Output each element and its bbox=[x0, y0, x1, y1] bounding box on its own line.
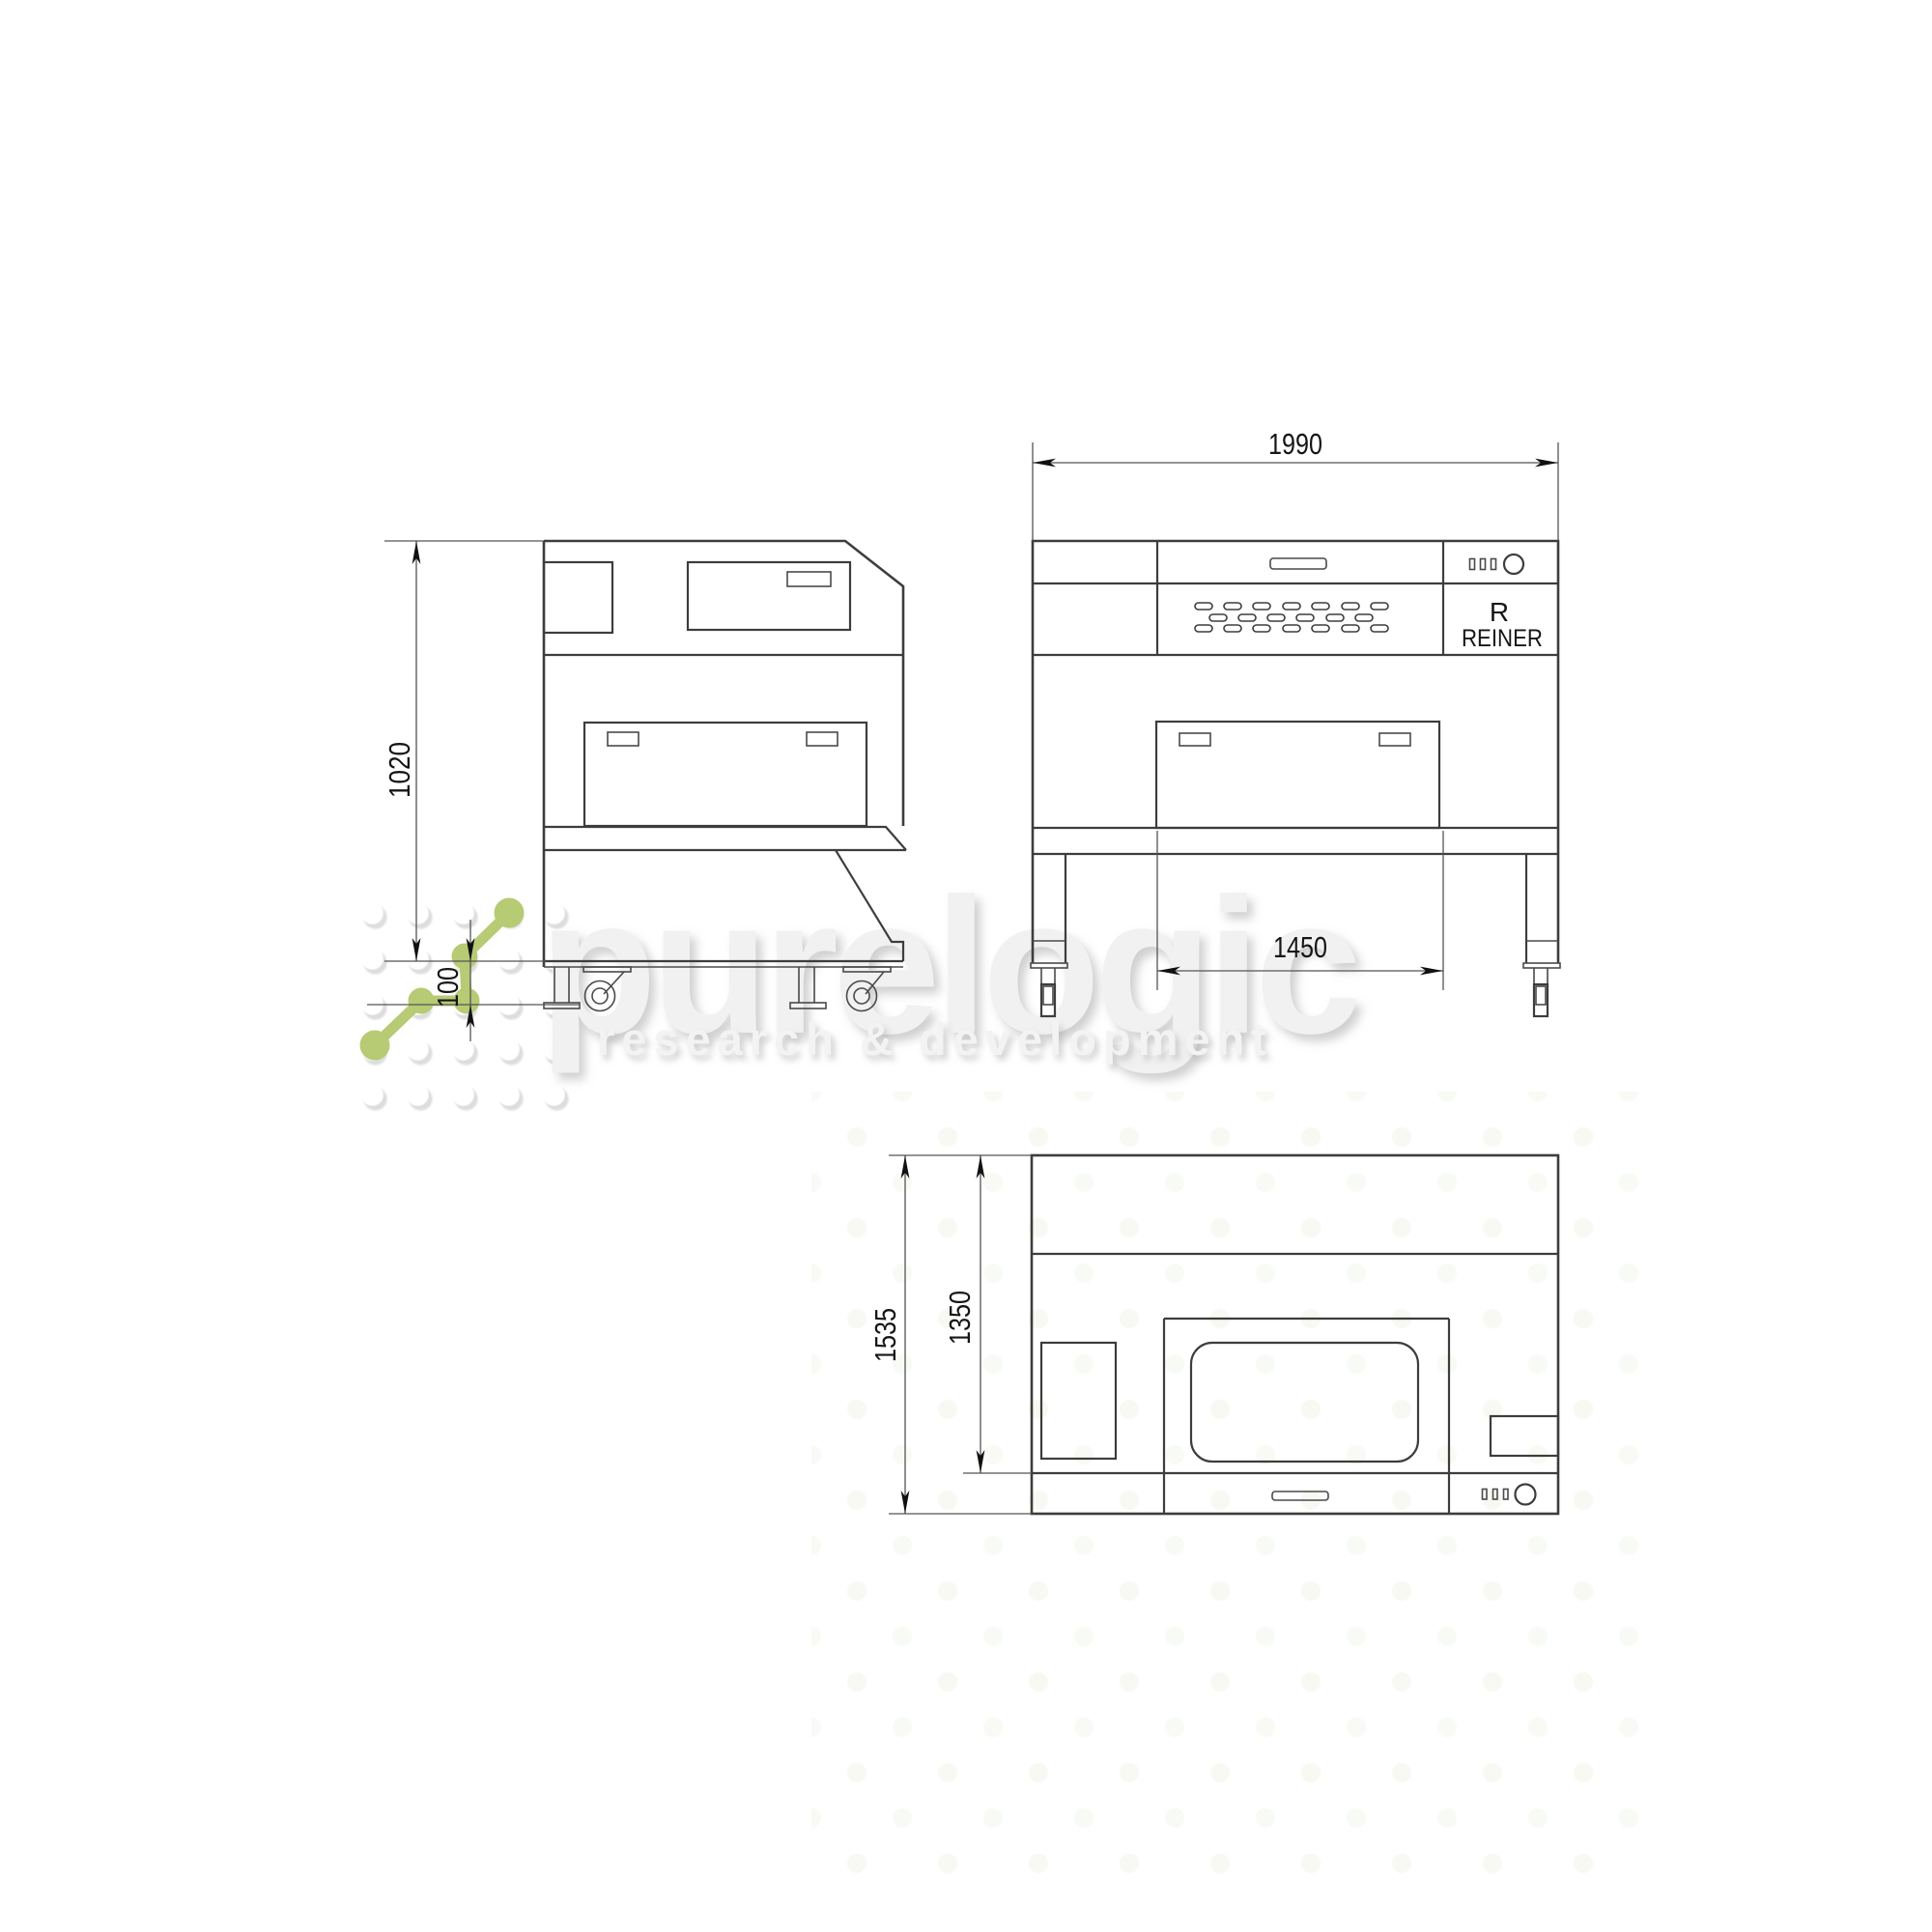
side-view bbox=[544, 541, 906, 1011]
technical-drawing: 1020 100 bbox=[0, 0, 1932, 1932]
caster-plate bbox=[583, 967, 631, 972]
vent-slot bbox=[1296, 614, 1314, 621]
leg-foot bbox=[790, 1003, 826, 1009]
front-control-cluster bbox=[1470, 554, 1524, 574]
caster-hub bbox=[592, 988, 608, 1004]
leg-stem bbox=[554, 967, 569, 1003]
side-table-band-top bbox=[544, 827, 906, 850]
front-handle-slot bbox=[1270, 558, 1326, 569]
side-base-diagonal bbox=[836, 850, 903, 961]
vent-slot bbox=[1224, 625, 1241, 632]
caster-wheel bbox=[847, 981, 877, 1011]
front-outline bbox=[1033, 541, 1558, 963]
vent-slot bbox=[1195, 603, 1212, 610]
column-foot bbox=[1523, 963, 1560, 968]
caster-stem bbox=[1041, 968, 1055, 984]
brand-name: REINER bbox=[1462, 625, 1543, 652]
vent-slot bbox=[1342, 625, 1359, 632]
top-handle-slot bbox=[1272, 1492, 1328, 1500]
indicator-bar bbox=[1483, 1490, 1488, 1500]
front-right-column bbox=[1523, 854, 1560, 1016]
column-foot bbox=[1031, 963, 1067, 968]
top-control-cluster bbox=[1483, 1485, 1536, 1505]
vent-slot bbox=[1253, 625, 1270, 632]
vent-slot bbox=[1312, 625, 1329, 632]
dim-text-top-total: 1535 bbox=[868, 1308, 902, 1362]
vent-slot bbox=[1371, 603, 1388, 610]
side-leg-rear bbox=[790, 967, 826, 1009]
dim-text-top-inner: 1350 bbox=[943, 1291, 977, 1345]
caster-stem bbox=[1534, 968, 1548, 984]
top-view bbox=[1032, 1155, 1558, 1514]
side-leg-front bbox=[544, 967, 580, 1009]
vent-slot bbox=[1342, 603, 1359, 610]
vent-slot bbox=[1371, 625, 1388, 632]
front-door-slot-right bbox=[1379, 733, 1410, 746]
top-door-window bbox=[1191, 1343, 1418, 1462]
drawing-page: purelogic research & development bbox=[0, 0, 1932, 1932]
indicator-bar bbox=[1492, 559, 1496, 570]
leg-foot bbox=[544, 1003, 580, 1009]
vent-slot bbox=[1253, 603, 1270, 610]
vent-slot bbox=[1267, 614, 1285, 621]
front-dimensions: 1990 1450 bbox=[1033, 427, 1558, 990]
caster-wheel-inner bbox=[1536, 986, 1546, 1005]
top-left-hatch bbox=[1041, 1343, 1116, 1459]
caster-plate bbox=[843, 967, 891, 972]
side-door-slot-right bbox=[807, 732, 838, 746]
vent-slot bbox=[1224, 603, 1241, 610]
dim-text-side-base: 100 bbox=[431, 967, 465, 1008]
top-dimensions: 1535 1350 bbox=[868, 1155, 1032, 1514]
vent-slot bbox=[1209, 614, 1227, 621]
top-outline bbox=[1032, 1155, 1558, 1514]
front-door bbox=[1156, 722, 1439, 828]
dim-text-side-height: 1020 bbox=[383, 742, 416, 798]
indicator-bar bbox=[1504, 1490, 1509, 1500]
vent-slot bbox=[1283, 603, 1300, 610]
dim-text-front-width: 1990 bbox=[1268, 427, 1322, 461]
side-door-slot-left bbox=[608, 732, 639, 746]
side-upper-panel-slot bbox=[787, 572, 831, 586]
vent-slot bbox=[1355, 614, 1373, 621]
front-left-column bbox=[1031, 854, 1067, 1016]
vent-slot bbox=[1312, 603, 1329, 610]
indicator-bar bbox=[1493, 1490, 1498, 1500]
caster-wheel bbox=[585, 981, 615, 1011]
indicator-bar bbox=[1481, 559, 1486, 570]
front-door-slot-left bbox=[1179, 733, 1210, 746]
power-button bbox=[1516, 1485, 1536, 1505]
top-right-hatch bbox=[1491, 1416, 1558, 1456]
caster-hub bbox=[854, 988, 869, 1004]
brand-letter: R bbox=[1490, 597, 1509, 627]
power-button bbox=[1504, 554, 1523, 574]
vent-slot bbox=[1283, 625, 1300, 632]
dim-text-front-inner: 1450 bbox=[1273, 930, 1327, 964]
side-caster-rear bbox=[843, 967, 891, 1011]
side-door bbox=[584, 723, 867, 826]
front-vent-grille bbox=[1195, 603, 1388, 632]
caster-wheel-inner bbox=[1043, 986, 1053, 1005]
leg-stem bbox=[799, 967, 814, 1003]
vent-slot bbox=[1195, 625, 1212, 632]
side-caster-front bbox=[583, 967, 631, 1011]
indicator-bar bbox=[1470, 559, 1475, 570]
vent-slot bbox=[1326, 614, 1344, 621]
vent-slot bbox=[1238, 614, 1256, 621]
side-left-window bbox=[544, 562, 612, 633]
